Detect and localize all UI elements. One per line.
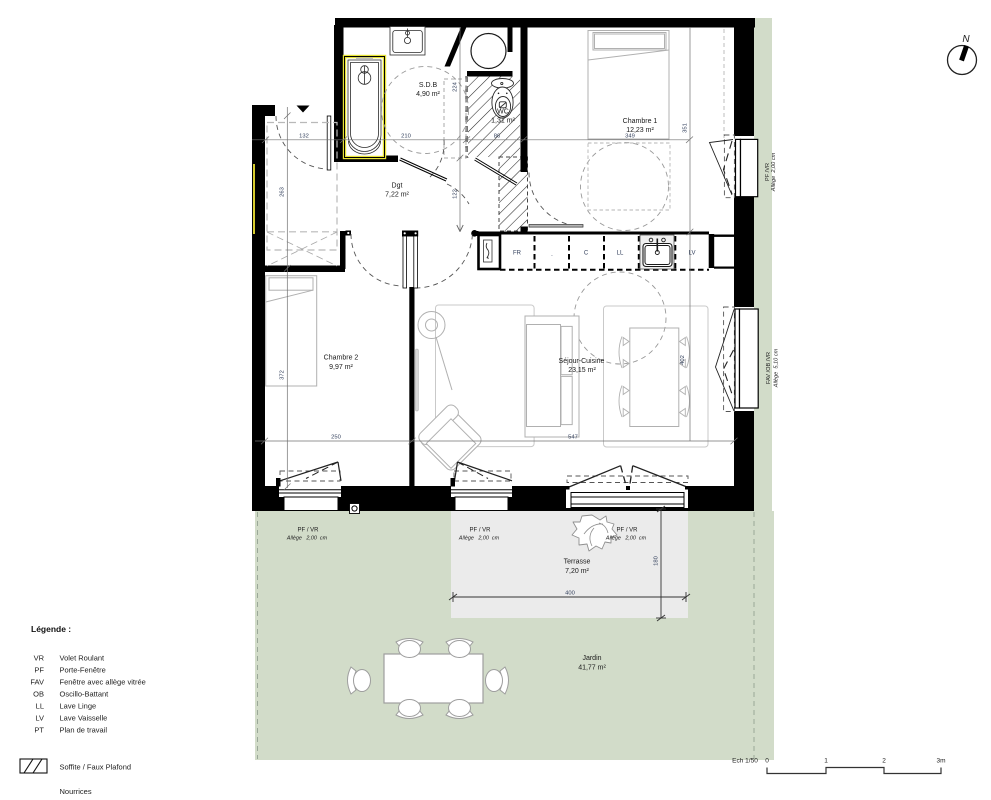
svg-text:250: 250	[331, 435, 341, 441]
svg-text:Allège 2,00 cm: Allège 2,00 cm	[286, 536, 328, 542]
svg-text:Porte-Fenêtre: Porte-Fenêtre	[60, 666, 106, 675]
svg-text:7,20 m²: 7,20 m²	[565, 568, 589, 575]
svg-text:402: 402	[680, 355, 686, 365]
svg-text:Allège 2,00 cm: Allège 2,00 cm	[771, 152, 777, 192]
svg-text:PF: PF	[34, 666, 44, 675]
svg-text:Terrasse: Terrasse	[564, 559, 591, 566]
svg-text:LV: LV	[689, 251, 696, 257]
svg-text:Séjour-Cuisine: Séjour-Cuisine	[559, 358, 605, 365]
svg-text:LV: LV	[35, 714, 44, 723]
svg-text:23,15 m²: 23,15 m²	[568, 367, 596, 374]
svg-text:122: 122	[453, 189, 459, 199]
svg-text:349: 349	[625, 134, 635, 140]
svg-text:Ech 1/50: Ech 1/50	[732, 758, 758, 765]
svg-text:263: 263	[280, 187, 286, 197]
svg-text:547: 547	[568, 435, 578, 441]
svg-text:41,77 m²: 41,77 m²	[578, 665, 606, 672]
svg-text:Volet Roulant: Volet Roulant	[60, 654, 106, 663]
svg-text:VR: VR	[34, 654, 45, 663]
svg-text:FAV: FAV	[30, 678, 44, 687]
svg-text:PF / VR: PF / VR	[297, 528, 319, 534]
svg-text:3m: 3m	[936, 758, 945, 765]
svg-text:Nourrices: Nourrices	[60, 787, 92, 796]
svg-text:Chambre 1: Chambre 1	[623, 118, 658, 125]
svg-text:210: 210	[401, 134, 411, 140]
svg-text:Lave Linge: Lave Linge	[60, 702, 97, 711]
svg-text:LL: LL	[617, 251, 624, 257]
svg-text:Soffite / Faux Plafond: Soffite / Faux Plafond	[60, 763, 132, 772]
svg-text:Fenêtre avec allège vitrée: Fenêtre avec allège vitrée	[60, 678, 146, 687]
svg-text:400: 400	[565, 591, 575, 597]
svg-text:372: 372	[280, 370, 286, 380]
svg-text:PF / VR: PF / VR	[616, 528, 638, 534]
svg-text:7,22 m²: 7,22 m²	[385, 192, 409, 199]
svg-text:0: 0	[765, 758, 769, 765]
svg-text:132: 132	[299, 134, 309, 140]
svg-text:N: N	[962, 34, 970, 45]
svg-text:Lave Vaisselle: Lave Vaisselle	[60, 714, 108, 723]
svg-text:224: 224	[453, 81, 459, 91]
svg-text:86: 86	[494, 134, 500, 140]
svg-text:12,23 m²: 12,23 m²	[626, 127, 654, 134]
svg-text:Allège 5,10 cm: Allège 5,10 cm	[774, 348, 780, 388]
svg-text:Dgt: Dgt	[392, 183, 403, 190]
svg-text:180: 180	[654, 556, 660, 566]
svg-text:Allège 2,00 cm: Allège 2,00 cm	[458, 536, 500, 542]
svg-text:S.D.B: S.D.B	[419, 82, 438, 89]
svg-text:Légende :: Légende :	[31, 624, 71, 634]
svg-text:C: C	[584, 251, 589, 257]
svg-text:OB: OB	[33, 690, 44, 699]
svg-text:351: 351	[683, 123, 689, 133]
svg-text:WC: WC	[497, 109, 509, 116]
svg-text:1: 1	[824, 758, 828, 765]
svg-text:2: 2	[882, 758, 886, 765]
svg-text:Plan de travail: Plan de travail	[60, 726, 108, 735]
svg-text:FR: FR	[513, 251, 522, 257]
svg-text:PT: PT	[34, 726, 44, 735]
svg-text:Chambre 2: Chambre 2	[324, 355, 359, 362]
svg-text:4,90 m²: 4,90 m²	[416, 91, 440, 98]
svg-text:Allège 2,00 cm: Allège 2,00 cm	[605, 536, 647, 542]
svg-text:9,97 m²: 9,97 m²	[329, 364, 353, 371]
svg-text:LL: LL	[36, 702, 44, 711]
svg-text:Jardin: Jardin	[582, 655, 601, 662]
svg-text:Oscillo-Battant: Oscillo-Battant	[60, 690, 110, 699]
svg-text:1,31 m²: 1,31 m²	[491, 118, 515, 125]
svg-text:FAV /OB /VR: FAV /OB /VR	[766, 352, 772, 384]
svg-text:PF / VR: PF / VR	[469, 528, 491, 534]
